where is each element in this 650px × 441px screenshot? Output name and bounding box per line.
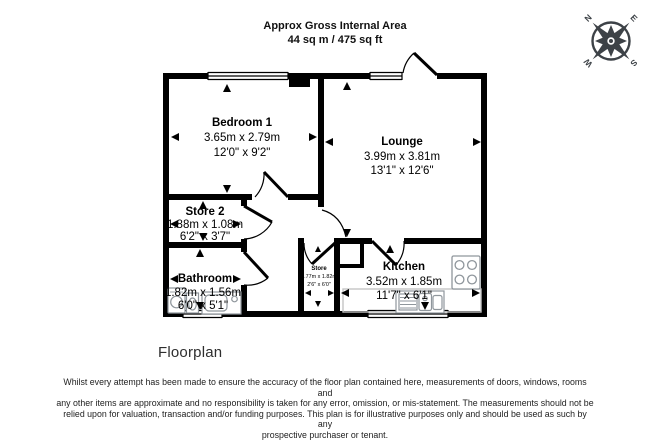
hob-icon <box>452 256 480 289</box>
store-door-leaf <box>312 243 335 264</box>
disclaimer-line: relied upon for valuation, transaction a… <box>55 409 595 430</box>
bedroom-window <box>208 71 288 81</box>
store2-label: Store 2 <box>186 206 225 218</box>
store2-imperial: 6'2" x 3'7" <box>180 231 230 243</box>
hall-lounge-arc <box>322 210 346 237</box>
wall-stubs <box>339 241 362 268</box>
bathroom-door-leaf <box>244 252 268 278</box>
lounge-metric: 3.99m x 3.81m <box>364 151 440 163</box>
floorplan-drawing: Bedroom 1 3.65m x 2.79m 12'0" x 9'2" Lou… <box>0 0 650 372</box>
store2-metric: 1.88m x 1.08m <box>167 219 243 231</box>
disclaimer-line: any other items are approximate and no r… <box>55 398 595 409</box>
store2-door-leaf <box>244 206 272 222</box>
bedroom-label: Bedroom 1 <box>212 117 273 129</box>
disclaimer-line: Whilst every attempt has been made to en… <box>55 377 595 398</box>
bathroom-metric: 1.82m x 1.56m <box>165 287 241 299</box>
lounge-window <box>370 71 402 81</box>
store-imperial: 2'6" x 6'0" <box>307 282 331 288</box>
floorplan-caption: Floorplan <box>158 344 222 361</box>
kitchen-metric: 3.52m x 1.85m <box>366 276 442 288</box>
entrance-door-leaf <box>414 53 437 75</box>
disclaimer-text: Whilst every attempt has been made to en… <box>55 377 595 441</box>
kitchen-label: Kitchen <box>383 261 425 273</box>
lounge-label: Lounge <box>381 136 423 148</box>
bedroom-imperial: 12'0" x 9'2" <box>214 147 271 159</box>
store-metric: 0.77m x 1.82m <box>301 274 337 280</box>
kitchen-imperial: 11'7" x 6'1" <box>376 290 432 302</box>
bathroom-label: Bathroom <box>178 273 232 285</box>
gross-area-value: 44 sq m / 475 sq ft <box>10 34 650 48</box>
store-label: Store <box>311 266 327 272</box>
plan-header: Approx Gross Internal Area 44 sq m / 475… <box>10 20 650 47</box>
bedroom-metric: 3.65m x 2.79m <box>204 132 280 144</box>
bathroom-imperial: 6'0" x 5'1" <box>178 300 228 312</box>
gross-area-title: Approx Gross Internal Area <box>10 20 650 34</box>
disclaimer-line: prospective purchaser or tenant. <box>55 430 595 441</box>
compass-s: S <box>628 57 639 68</box>
wall-pillar <box>289 79 310 87</box>
compass-w: W <box>581 56 594 69</box>
bedroom-door-leaf <box>264 172 288 197</box>
lounge-imperial: 13'1" x 12'6" <box>370 165 433 177</box>
